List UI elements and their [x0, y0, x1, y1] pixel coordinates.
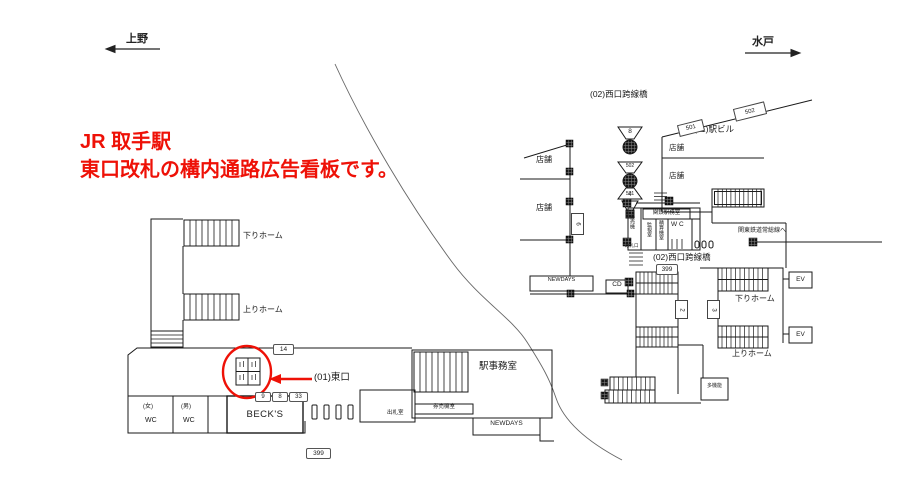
right-up-platform-label: 上りホーム — [732, 350, 772, 358]
elevator-2-label: EV — [789, 332, 812, 339]
shop-label-3: 店舗 — [669, 144, 684, 152]
ticket-window-label: 出札室 — [387, 411, 404, 417]
billboard-tag-33: 33 — [289, 392, 308, 402]
board-icon-4-label: 4 — [626, 192, 634, 198]
gate-label: 改札口 — [625, 244, 639, 249]
ticket-machines-label: 券売機 — [629, 214, 634, 229]
shop-label-1: 店舗 — [536, 156, 552, 164]
annotation-title: JR 取手駅 東口改札の構内通路広告看板です。 — [80, 128, 398, 184]
fare-adjust-room-label: 精算機室 — [658, 220, 663, 240]
elevator-1-label: EV — [789, 277, 812, 284]
station-map-linework — [0, 0, 919, 491]
joso-line-label: 関東鉄道常総線へ — [738, 228, 786, 234]
cd-atm-label: CD — [606, 282, 628, 289]
direction-arrow-mito — [745, 50, 800, 57]
billboard-tag-2-text: 2 — [679, 308, 685, 311]
boundary-curve — [335, 64, 622, 460]
shop-label-2: 店舗 — [536, 204, 552, 212]
left-down-platform-label: 下りホーム — [243, 232, 283, 240]
west-overpass-mid-label: (02)西口跨線橋 — [653, 253, 711, 262]
billboard-tag-14: 14 — [273, 344, 294, 355]
billboard-tag-399-right: 399 — [656, 264, 678, 275]
ticket-machine-room-label: 券売機室 — [415, 405, 473, 411]
becks-shop-label: BECK'S — [227, 410, 303, 420]
billboard-tag-399-left: 399 — [306, 448, 331, 459]
billboard-tag-6: 6 — [571, 213, 584, 235]
wc-women-paren-label: (女) — [143, 404, 153, 410]
shop-label-4: 店舗 — [669, 172, 684, 180]
left-diagram — [128, 219, 554, 441]
wc-right-label: W C — [671, 222, 684, 229]
billboard-tag-2: 2 — [675, 300, 688, 319]
station-office-label: 駅事務室 — [479, 362, 517, 372]
newdays-left-label: NEWDAYS — [473, 421, 540, 428]
newdays-right-label: NEWDAYS — [530, 278, 593, 284]
billboard-tag-6-text: 6 — [575, 222, 581, 225]
right-down-platform-label: 下りホーム — [735, 295, 775, 303]
annotation-title-line2: 東口改札の構内通路広告看板です。 — [80, 156, 398, 184]
direction-ueno-label: 上野 — [126, 34, 148, 45]
billboard-tag-9: 9 — [255, 392, 271, 402]
annotation-title-line1: JR 取手駅 — [80, 128, 398, 156]
kantetsu-office-label: 関鉄駅務室 — [643, 211, 690, 217]
billboard-tag-3: 3 — [707, 300, 720, 319]
direction-arrow-ueno — [106, 46, 160, 53]
billboard-tag-8: 8 — [272, 392, 288, 402]
direction-mito-label: 水戸 — [752, 37, 774, 48]
board-icon-8-label: 8 — [624, 129, 636, 136]
billboard-tag-3-text: 3 — [711, 308, 717, 311]
west-overpass-top-label: (02)西口跨線橋 — [590, 90, 648, 99]
multifunction-toilet-label: 多機能 — [701, 384, 728, 389]
monitor-room-label: 監視室 — [646, 222, 651, 237]
east-exit-callout-label: (01)東口 — [314, 373, 350, 383]
station-map-page: 上野 水戸 JR 取手駅 東口改札の構内通路広告看板です。 下りホーム 上りホー… — [0, 0, 919, 491]
wc-men-paren-label: (男) — [181, 404, 191, 410]
board-icon-502-label: 502 — [622, 164, 638, 169]
wc-men-label: WC — [183, 417, 195, 424]
wc-women-label: WC — [145, 417, 157, 424]
left-up-platform-label: 上りホーム — [243, 306, 283, 314]
